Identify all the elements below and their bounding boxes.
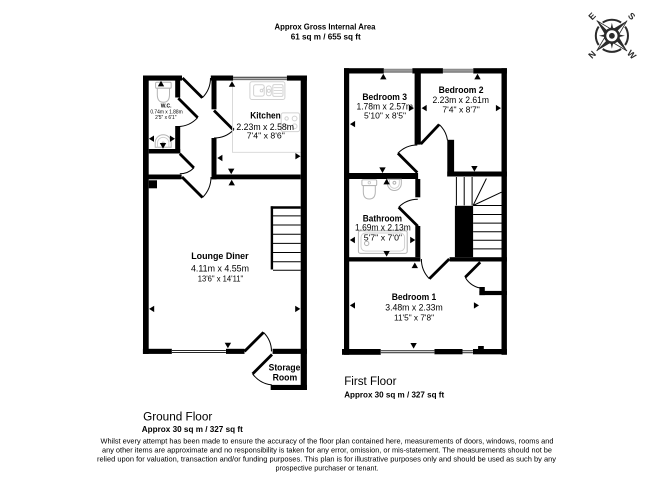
svg-text:5'10" x 8'5": 5'10" x 8'5" bbox=[364, 111, 406, 121]
svg-text:Approx 30 sq m / 327 sq ft: Approx 30 sq m / 327 sq ft bbox=[344, 390, 444, 400]
svg-text:any other items are approximat: any other items are approximate and no r… bbox=[102, 445, 552, 454]
svg-text:Bedroom 1: Bedroom 1 bbox=[392, 292, 437, 302]
svg-text:5'7" x 7'0": 5'7" x 7'0" bbox=[364, 232, 402, 242]
svg-text:Bedroom 3: Bedroom 3 bbox=[362, 92, 407, 102]
svg-text:Bedroom 2: Bedroom 2 bbox=[439, 85, 484, 95]
svg-text:prospective purchaser or tenan: prospective purchaser or tenant. bbox=[276, 463, 379, 472]
svg-text:7'4" x 8'7": 7'4" x 8'7" bbox=[442, 105, 480, 115]
svg-text:Ground Floor: Ground Floor bbox=[143, 410, 212, 424]
svg-text:First Floor: First Floor bbox=[344, 374, 396, 388]
svg-text:W.C.: W.C. bbox=[161, 103, 172, 109]
svg-text:Kitchen: Kitchen bbox=[250, 110, 281, 120]
svg-text:Lounge Diner: Lounge Diner bbox=[191, 251, 249, 261]
svg-text:7'4" x 8'6": 7'4" x 8'6" bbox=[247, 131, 285, 141]
svg-text:Whilst every attempt has been: Whilst every attempt has been made to en… bbox=[101, 436, 554, 445]
svg-text:11'5" x 7'8": 11'5" x 7'8" bbox=[394, 313, 434, 323]
svg-text:relied upon for valuation, tra: relied upon for valuation, transaction a… bbox=[97, 454, 556, 463]
svg-text:Storage: Storage bbox=[269, 362, 301, 372]
svg-text:Room: Room bbox=[273, 373, 298, 383]
svg-text:Approx Gross Internal Area: Approx Gross Internal Area bbox=[275, 23, 376, 32]
svg-text:13'6" x 14'11": 13'6" x 14'11" bbox=[198, 274, 244, 284]
svg-text:2'5" x 6'1": 2'5" x 6'1" bbox=[155, 115, 176, 121]
svg-text:Approx 30 sq m / 327 sq ft: Approx 30 sq m / 327 sq ft bbox=[142, 424, 243, 434]
svg-text:61 sq m / 655 sq ft: 61 sq m / 655 sq ft bbox=[291, 32, 361, 41]
